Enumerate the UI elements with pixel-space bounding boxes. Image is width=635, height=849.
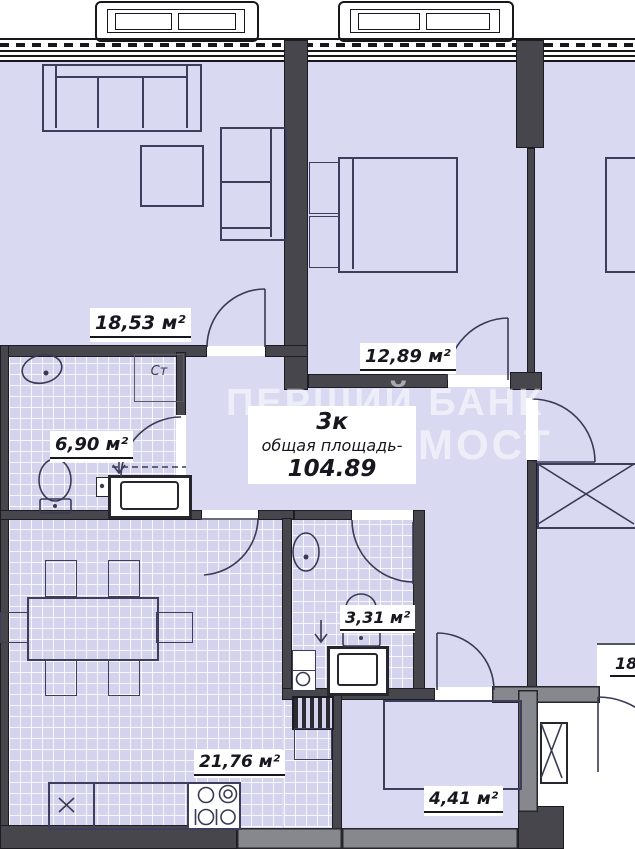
label-balcony-area: 4,41 м² [424, 786, 503, 816]
wall [527, 460, 537, 688]
armchair-seat-divider [220, 181, 270, 183]
nightstand [309, 162, 340, 214]
chair [45, 560, 77, 597]
wall-gray [237, 828, 342, 849]
unit-caption: общая площадь- [248, 436, 416, 455]
coffee-table [140, 145, 204, 207]
armchair-seat-divider [220, 227, 270, 229]
wall-left [0, 345, 9, 829]
sofa-armrest [186, 64, 188, 128]
counter-divider [93, 782, 95, 826]
wall [284, 40, 308, 390]
sofa-armrest [55, 64, 57, 128]
bathtub-inner [120, 481, 179, 510]
wall-corner-block [518, 806, 564, 849]
unit-total-area: 104.89 [248, 456, 416, 482]
balcony-floor-outline [383, 700, 522, 790]
bed-headboard-line [352, 157, 354, 269]
wall-partition [527, 148, 535, 380]
wall-pillar [516, 40, 544, 148]
label-wc-area: 3,31 м² [340, 605, 415, 633]
stove [187, 782, 241, 830]
wall [413, 510, 425, 692]
door-opening [176, 415, 186, 477]
vent-shaft [292, 696, 334, 730]
wc-shelf [292, 670, 316, 691]
door-opening [435, 687, 492, 701]
frame-panel [426, 13, 490, 30]
nightstand [309, 216, 340, 268]
elevator-shaft [540, 722, 568, 784]
frame-panel [178, 13, 236, 30]
washing-machine-drum [337, 653, 378, 686]
sofa-seat-divider [142, 78, 144, 128]
wall-gray [342, 828, 518, 849]
frame-panel [115, 13, 172, 30]
wall [265, 345, 308, 357]
chair [45, 659, 77, 696]
wall [294, 510, 352, 520]
label-kitchen-area: 21,76 м² [194, 750, 285, 778]
door-opening [207, 346, 265, 356]
watermark-line2: МОСТ [418, 424, 553, 466]
kitchen-cabinet [294, 728, 332, 760]
door-opening [202, 510, 258, 520]
washer-spot: Ст [134, 354, 184, 402]
unit-summary-box: 3к общая площадь- 104.89 [248, 406, 416, 484]
sofa-back-line [55, 76, 188, 78]
chair [0, 612, 28, 643]
sofa [42, 64, 202, 132]
door-opening [352, 510, 413, 520]
dining-table [27, 597, 159, 661]
chair [156, 612, 193, 643]
armchair-sofa [220, 127, 287, 241]
washer-spot-label: Ст [135, 355, 183, 379]
label-bedroom-area: 12,89 м² [360, 343, 456, 374]
wardrobe [537, 463, 635, 529]
sofa-seat-divider [97, 78, 99, 128]
unit-type: 3к [248, 409, 416, 435]
bed [338, 157, 458, 273]
chair [108, 659, 140, 696]
wall [282, 518, 292, 690]
frame-panel [358, 13, 420, 30]
neighbor-wall-line [597, 643, 635, 645]
floorplan-canvas: Ст [0, 0, 635, 849]
wc-shelf [292, 650, 316, 671]
label-neighbor-fragment: 18, [610, 651, 635, 679]
bed [605, 157, 635, 273]
armchair-back-line [270, 127, 272, 237]
chair [108, 560, 140, 597]
label-living-area: 18,53 м² [90, 308, 191, 342]
label-bathroom-area: 6,90 м² [50, 431, 133, 462]
